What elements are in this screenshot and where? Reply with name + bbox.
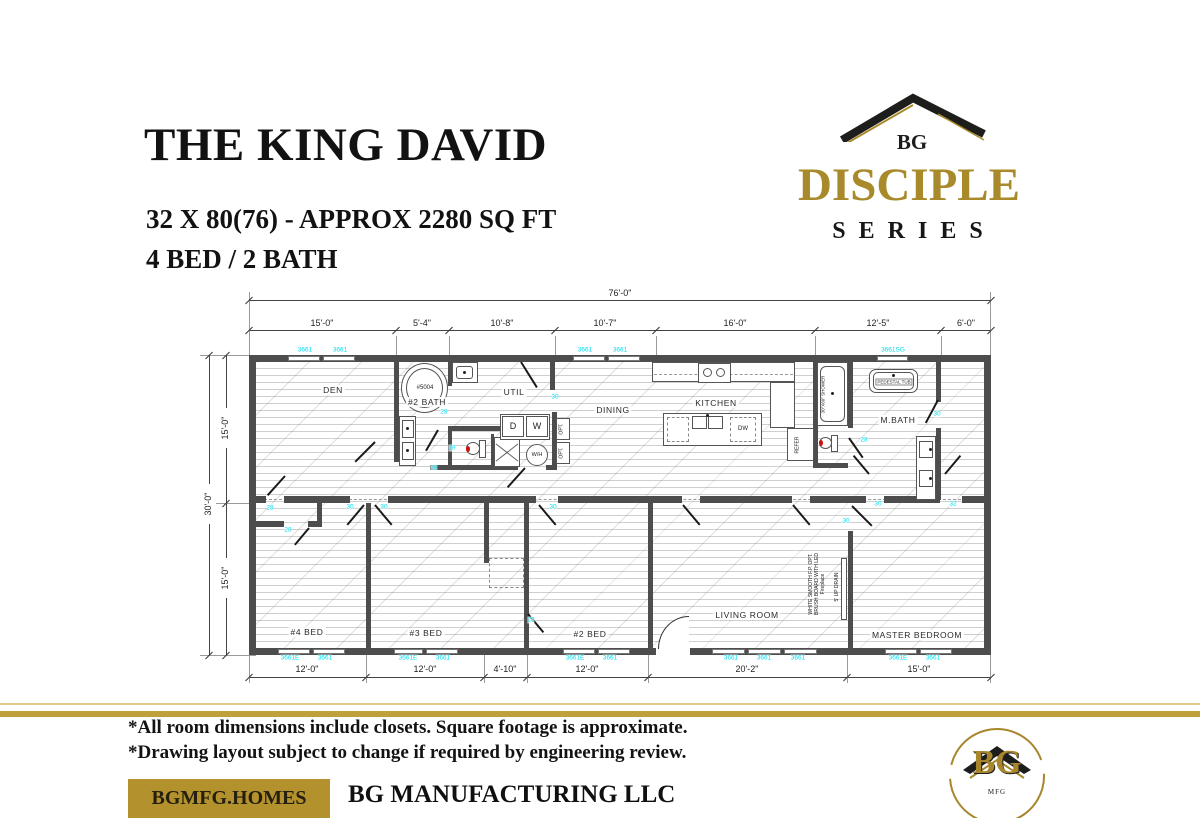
seal-sub-label: MFG — [947, 788, 1047, 796]
door-size-label: 30 — [933, 411, 940, 418]
seal-monogram: BG — [947, 744, 1047, 782]
door-size-label: 28 — [440, 409, 447, 416]
door-size-label: 28 — [527, 617, 534, 624]
floorplan-sheet: THE KING DAVID 32 X 80(76) - APPROX 2280… — [0, 0, 1200, 818]
footnote-1: *All room dimensions include closets. Sq… — [128, 717, 687, 739]
door-size-label: 28 — [266, 505, 273, 512]
door-size-label: 30 — [874, 501, 881, 508]
door-size-label: 28 — [284, 527, 291, 534]
door-size-label: 30 — [380, 504, 387, 511]
website-label: BGMFG.HOMES — [152, 787, 307, 810]
door-size-label: 30 — [842, 518, 849, 525]
door-size-label: 28 — [860, 437, 867, 444]
door-size-label: 30 — [346, 504, 353, 511]
door-size-label: 30 — [549, 504, 556, 511]
gold-divider-thin — [0, 703, 1200, 705]
door-size-label: 32 — [949, 501, 956, 508]
floor-plan: #5004 W/H D W OPT. OPT. REFER — [0, 0, 1200, 818]
door-size-label: 28 — [430, 465, 437, 472]
company-name: BG MANUFACTURING LLC — [348, 781, 675, 809]
footnote-2: *Drawing layout subject to change if req… — [128, 742, 686, 764]
door-size-label: 30 — [551, 394, 558, 401]
website-badge[interactable]: BGMFG.HOMES — [128, 779, 330, 818]
door-size-label: 28 — [448, 445, 455, 452]
